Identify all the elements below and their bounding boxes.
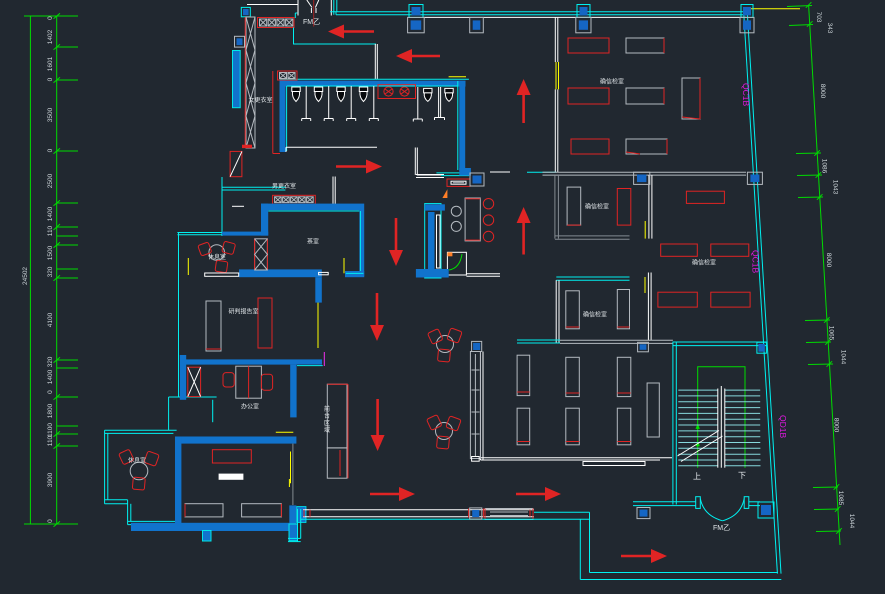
svg-text:1085: 1085 [837, 491, 844, 506]
svg-text:0: 0 [47, 390, 54, 394]
svg-text:区: 区 [324, 420, 330, 427]
svg-text:QC1B: QC1B [741, 83, 751, 106]
svg-text:0: 0 [47, 16, 54, 20]
svg-text:4100: 4100 [47, 312, 54, 327]
svg-text:3500: 3500 [47, 107, 54, 122]
svg-text:域: 域 [324, 426, 330, 434]
svg-text:休息室: 休息室 [128, 457, 146, 465]
svg-text:1601: 1601 [47, 56, 54, 71]
svg-text:1065: 1065 [828, 326, 835, 341]
svg-text:3900: 3900 [47, 472, 54, 487]
svg-text:0: 0 [47, 519, 54, 523]
svg-text:8000: 8000 [833, 418, 840, 433]
svg-text:QC1B: QC1B [751, 250, 761, 273]
svg-text:8000: 8000 [825, 253, 832, 268]
svg-text:1800: 1800 [47, 403, 54, 418]
svg-text:FM乙: FM乙 [303, 18, 320, 26]
svg-text:0: 0 [47, 77, 54, 81]
svg-text:1044: 1044 [840, 350, 847, 365]
svg-text:男更衣室: 男更衣室 [272, 182, 296, 190]
svg-text:下: 下 [738, 471, 746, 480]
svg-text:上: 上 [693, 472, 701, 481]
svg-text:1043: 1043 [832, 180, 839, 195]
svg-text:343: 343 [826, 23, 833, 34]
svg-text:1044: 1044 [848, 514, 855, 529]
svg-text:确信检室: 确信检室 [600, 78, 624, 86]
svg-text:休息室: 休息室 [208, 253, 226, 261]
svg-text:FM乙: FM乙 [713, 524, 730, 532]
svg-text:1100: 1100 [47, 423, 54, 437]
svg-text:台: 台 [324, 412, 330, 420]
svg-text:QD1B: QD1B [778, 415, 788, 438]
svg-text:前: 前 [324, 405, 330, 413]
svg-text:茶室: 茶室 [307, 238, 319, 246]
svg-text:0: 0 [47, 148, 54, 152]
svg-text:2500: 2500 [47, 173, 54, 188]
svg-text:8000: 8000 [819, 84, 826, 99]
svg-text:24502: 24502 [22, 267, 29, 285]
svg-text:确信检室: 确信检室 [692, 259, 716, 267]
svg-text:703: 703 [815, 12, 822, 23]
svg-text:女更衣室: 女更衣室 [249, 96, 273, 104]
svg-text:办公室: 办公室 [241, 403, 259, 411]
svg-text:确信检室: 确信检室 [583, 311, 607, 319]
svg-text:1400: 1400 [47, 369, 54, 384]
svg-text:320: 320 [47, 356, 54, 367]
svg-text:1086: 1086 [821, 159, 828, 174]
svg-text:1402: 1402 [47, 29, 54, 44]
svg-text:1500: 1500 [47, 245, 54, 260]
svg-text:110: 110 [47, 435, 54, 446]
svg-text:110: 110 [47, 225, 54, 236]
svg-text:320: 320 [47, 266, 54, 277]
svg-text:研判报告室: 研判报告室 [229, 308, 259, 316]
svg-text:确信检室: 确信检室 [585, 203, 609, 211]
svg-text:1400: 1400 [47, 206, 54, 221]
